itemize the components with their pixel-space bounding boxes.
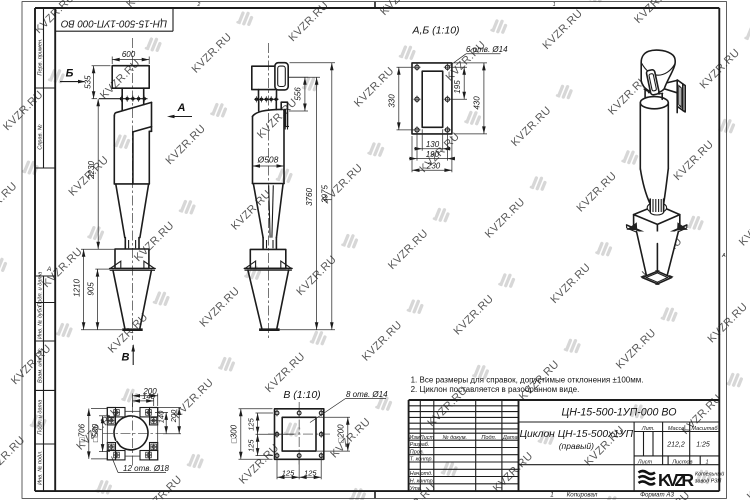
svg-text:Нач.отд.: Нач.отд. — [410, 471, 433, 477]
svg-text:Инв. № дубл.: Инв. № дубл. — [38, 305, 44, 339]
svg-text:завод РЗП: завод РЗП — [694, 479, 721, 485]
svg-text:1:25: 1:25 — [696, 442, 710, 449]
svg-text:□300: □300 — [229, 424, 238, 443]
svg-text:2. Циклон поставляется в разоб: 2. Циклон поставляется в разобранном вид… — [411, 385, 580, 394]
svg-text:Подп.: Подп. — [481, 435, 496, 441]
svg-text:556: 556 — [293, 87, 302, 101]
svg-text:125: 125 — [304, 468, 317, 477]
svg-text:Лит.: Лит. — [641, 426, 655, 432]
svg-text:3975: 3975 — [320, 185, 329, 203]
svg-text:А: А — [721, 253, 726, 259]
svg-text:Циклон ЦН-15-500х1УП: Циклон ЦН-15-500х1УП — [520, 429, 634, 440]
svg-text:212,2: 212,2 — [666, 442, 685, 449]
svg-text:Дата: Дата — [502, 435, 518, 441]
svg-text:6 отв. Ø14: 6 отв. Ø14 — [466, 45, 508, 54]
svg-text:330: 330 — [388, 94, 397, 108]
svg-text:1: 1 — [550, 491, 553, 498]
svg-text:140: 140 — [142, 392, 155, 401]
svg-text:□706: □706 — [77, 423, 86, 442]
svg-text:Листов: Листов — [671, 459, 692, 465]
svg-text:(правый): (правый) — [559, 441, 594, 451]
svg-text:Н. контр.: Н. контр. — [410, 479, 434, 485]
svg-text:600: 600 — [122, 50, 136, 59]
svg-text:А: А — [46, 266, 51, 273]
svg-text:125: 125 — [282, 468, 295, 477]
svg-text:200: 200 — [169, 409, 178, 423]
svg-text:В (1:10): В (1:10) — [283, 389, 320, 401]
svg-text:12 отв. Ø18: 12 отв. Ø18 — [123, 464, 170, 473]
svg-text:Копировал: Копировал — [567, 491, 598, 498]
svg-text:Утв.: Утв. — [409, 486, 422, 492]
svg-text:3760: 3760 — [305, 188, 314, 206]
svg-text:Разраб.: Разраб. — [410, 442, 430, 448]
svg-text:□200: □200 — [337, 424, 346, 443]
svg-text:В: В — [122, 352, 130, 364]
svg-text:KVZR: KVZR — [658, 470, 694, 490]
svg-text:№ докум.: № докум. — [442, 435, 467, 441]
svg-text:1210: 1210 — [72, 279, 81, 297]
svg-text:Масса: Масса — [668, 426, 685, 432]
svg-text:Справ. №: Справ. № — [38, 124, 44, 149]
svg-text:195: 195 — [453, 80, 462, 94]
svg-text:140: 140 — [156, 410, 165, 423]
svg-text:ЦН-15-500-1УП-000 ВО: ЦН-15-500-1УП-000 ВО — [60, 18, 167, 29]
svg-text:Ø508: Ø508 — [257, 155, 279, 165]
svg-text:1: 1 — [705, 459, 708, 465]
svg-text:А,Б (1:10): А,Б (1:10) — [411, 25, 459, 37]
svg-text:Котельный: Котельный — [695, 471, 724, 478]
svg-text:190: 190 — [426, 150, 440, 159]
svg-text:Б: Б — [66, 68, 74, 80]
svg-text:Подп. и дата: Подп. и дата — [38, 272, 44, 307]
svg-text:Инв. № подл.: Инв. № подл. — [38, 450, 44, 485]
svg-text:125: 125 — [247, 417, 256, 430]
svg-text:8 отв. Ø14: 8 отв. Ø14 — [346, 390, 388, 399]
svg-text:Изм: Изм — [409, 435, 420, 441]
svg-text:ЦН-15-500-1УП-000 ВО: ЦН-15-500-1УП-000 ВО — [562, 407, 677, 419]
svg-text:2230: 2230 — [87, 161, 96, 180]
svg-text:Взам. инв. №: Взам. инв. № — [38, 348, 44, 383]
svg-text:Формат А3: Формат А3 — [640, 491, 674, 498]
svg-text:2: 2 — [197, 2, 201, 8]
svg-text:Лист: Лист — [419, 435, 435, 441]
svg-text:535: 535 — [83, 75, 92, 89]
svg-text:130: 130 — [426, 140, 440, 149]
svg-text:430: 430 — [473, 96, 482, 110]
svg-text:125: 125 — [247, 439, 256, 452]
svg-text:Масштаб: Масштаб — [691, 426, 718, 432]
svg-text:Лист: Лист — [637, 459, 653, 465]
svg-text:230: 230 — [426, 161, 441, 170]
svg-text:Перв. примен.: Перв. примен. — [38, 38, 44, 75]
svg-text:905: 905 — [86, 282, 95, 296]
svg-text:Пров.: Пров. — [410, 449, 424, 455]
svg-text:□500: □500 — [91, 423, 100, 442]
svg-text:Подп. и дата: Подп. и дата — [38, 400, 44, 435]
svg-text:А: А — [177, 102, 186, 114]
svg-text:1: 1 — [553, 2, 556, 8]
svg-text:Т. контр.: Т. контр. — [410, 457, 433, 463]
svg-text:1. Все размеры для справок, до: 1. Все размеры для справок, допустимые о… — [411, 376, 644, 385]
